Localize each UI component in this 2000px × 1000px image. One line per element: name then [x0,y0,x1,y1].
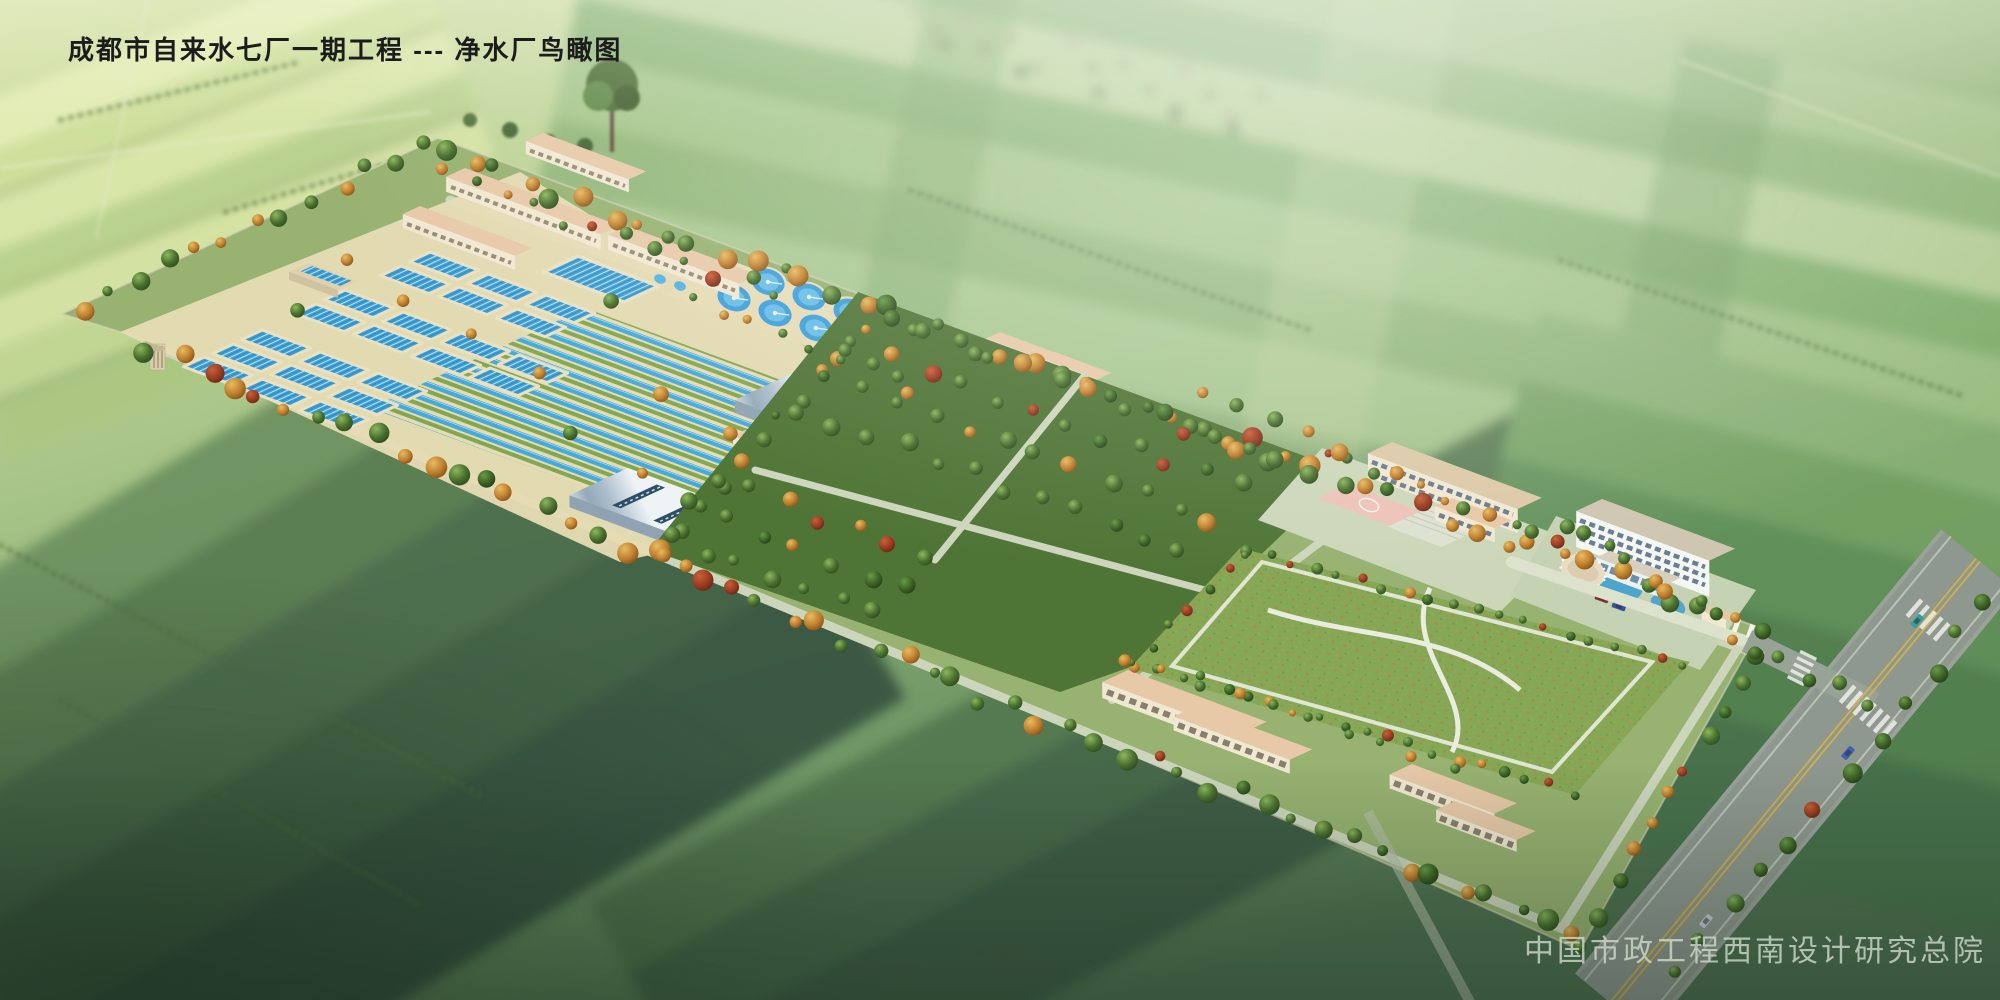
page-title: 成都市自来水七厂一期工程 --- 净水厂鸟瞰图 [68,30,622,67]
rendering-stage: 成都市自来水七厂一期工程 --- 净水厂鸟瞰图 中国市政工程西南设计研究总院 [0,0,2000,1000]
design-institute-credit: 中国市政工程西南设计研究总院 [1524,926,1986,970]
aerial-rendering [0,0,2000,1000]
